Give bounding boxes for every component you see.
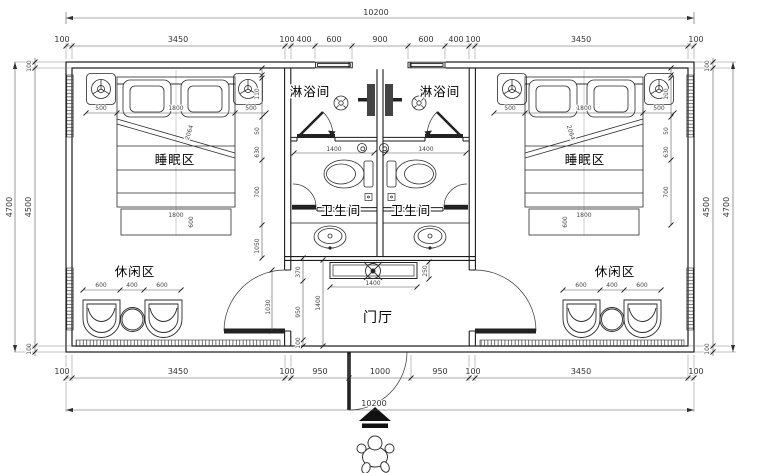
dim-label: 400 xyxy=(448,35,463,44)
dim-label: 630 xyxy=(663,146,670,158)
dim-label: 100 xyxy=(26,343,33,355)
armchair-icon xyxy=(145,300,182,338)
dim-label: 600 xyxy=(636,282,648,289)
dim-label: 600 xyxy=(156,282,168,289)
dim-label: 370 xyxy=(295,266,302,278)
dim-label: 950 xyxy=(432,367,447,376)
door-arc xyxy=(293,184,316,207)
dim-label: 400 xyxy=(606,282,618,289)
dim-label: 400 xyxy=(126,282,138,289)
door-arc xyxy=(224,270,285,331)
toilet-icon xyxy=(324,160,373,188)
dim-label: 100 xyxy=(465,367,480,376)
room-label-foyer: 门厅 xyxy=(363,310,393,326)
wall-openings xyxy=(315,61,446,69)
shower-head-icon xyxy=(334,96,348,110)
lounge-left xyxy=(83,300,182,338)
dim-label: 600 xyxy=(95,282,107,289)
dim-label: 1400 xyxy=(315,295,322,310)
door-leaf xyxy=(444,205,468,210)
shower-track xyxy=(425,134,463,138)
dim-label: 700 xyxy=(663,186,670,198)
dim-label: 1800 xyxy=(576,212,591,219)
dim-label: 600 xyxy=(326,35,341,44)
dim-label: 4700 xyxy=(5,197,14,217)
dim-label: 110 xyxy=(254,88,261,100)
dim-label: 3450 xyxy=(168,367,188,376)
dim-label: 3450 xyxy=(168,35,188,44)
armchair-icon xyxy=(83,300,120,338)
dim-label: 600 xyxy=(188,216,195,228)
dim-label: 50 xyxy=(663,127,670,135)
dim-label: 100 xyxy=(279,367,294,376)
room-label-shower-right: 淋浴间 xyxy=(420,84,461,99)
dim-label: 100 xyxy=(688,367,703,376)
dim-label: 100 xyxy=(465,35,480,44)
sink-icon xyxy=(314,226,346,249)
room-label-lounge-right: 休闲区 xyxy=(595,264,636,279)
shower-valve-icon xyxy=(358,84,402,116)
room-label-wc-right: 卫生间 xyxy=(391,203,432,218)
door-arc xyxy=(475,270,536,331)
toilet-icon xyxy=(387,160,436,188)
dim-label: 700 xyxy=(254,186,261,198)
floor-drain-icon xyxy=(365,194,395,201)
dim-label: 100 xyxy=(54,367,69,376)
ceiling-lamp-icon xyxy=(87,74,116,105)
dim-label: 600 xyxy=(575,282,587,289)
dim-label: 1400 xyxy=(326,146,341,153)
dim-label: 1050 xyxy=(254,238,261,253)
dim-label: 900 xyxy=(372,35,387,44)
dim-label: 250 xyxy=(422,265,429,277)
floor-plan-drawing: 睡眠区 睡眠区 淋浴间 淋浴间 卫生间 卫生间 休闲区 休闲区 门厅 10200… xyxy=(0,0,760,473)
dim-label: 630 xyxy=(254,146,261,158)
room-label-shower-left: 淋浴间 xyxy=(290,84,331,99)
dim-label: 600 xyxy=(418,35,433,44)
dim-label: 500 xyxy=(653,105,665,112)
dim-label: 3450 xyxy=(571,35,591,44)
door-leaf xyxy=(224,329,285,334)
room-label-lounge-left: 休闲区 xyxy=(115,264,156,279)
door-leaf xyxy=(292,205,316,210)
dim-label: 500 xyxy=(504,105,516,112)
doors xyxy=(224,112,536,410)
dim-label: 1800 xyxy=(576,105,591,112)
dim-label: 100 xyxy=(279,35,294,44)
dim-label: 2064 xyxy=(184,124,195,141)
dim-label: 10200 xyxy=(363,8,388,17)
dim-label: 950 xyxy=(295,306,302,318)
dim-label: 600 xyxy=(562,216,569,228)
armchair-icon xyxy=(624,300,661,338)
dim-label: 110 xyxy=(663,88,670,100)
dim-label: 1400 xyxy=(418,146,433,153)
room-label-sleep-left: 睡眠区 xyxy=(155,152,196,167)
dim-label: 500 xyxy=(245,105,257,112)
dim-label: 100 xyxy=(704,60,711,72)
bathroom-fixtures xyxy=(314,84,446,249)
foyer-area xyxy=(330,262,417,280)
dim-label: 10200 xyxy=(361,399,386,408)
room-label-wc-left: 卫生间 xyxy=(321,203,362,218)
dim-label: 100 xyxy=(704,343,711,355)
toilet-paper-icon xyxy=(358,144,389,153)
dim-label: 4500 xyxy=(24,197,33,217)
sink-icon xyxy=(414,226,446,249)
round-table-icon xyxy=(600,308,624,332)
shower-door-leaf xyxy=(299,112,461,136)
dim-label: 950 xyxy=(312,367,327,376)
dim-label: 1800 xyxy=(168,105,183,112)
dim-label: 2064 xyxy=(565,124,576,141)
dim-label: 1030 xyxy=(265,299,272,314)
person-figure-icon xyxy=(357,436,394,473)
door-leaf xyxy=(475,329,536,334)
lounge-right xyxy=(563,300,661,338)
dim-label: 3450 xyxy=(571,367,591,376)
room-label-sleep-right: 睡眠区 xyxy=(565,152,606,167)
dim-label: 400 xyxy=(296,35,311,44)
dim-label: 50 xyxy=(254,127,261,135)
door-arc xyxy=(444,184,467,207)
dim-label: 4700 xyxy=(722,197,731,217)
dim-label: 1400 xyxy=(365,280,380,287)
dim-label: 100 xyxy=(295,337,302,349)
dim-label: 1800 xyxy=(168,212,183,219)
ceiling-lamp-icon xyxy=(498,74,527,105)
dim-label: 4500 xyxy=(702,197,711,217)
dim-label: 100 xyxy=(54,35,69,44)
dim-label: 100 xyxy=(26,60,33,72)
dim-label: 1000 xyxy=(370,367,390,376)
armchair-icon xyxy=(563,300,600,338)
dim-label: 500 xyxy=(95,105,107,112)
round-table-icon xyxy=(121,308,145,332)
dim-label: 100 xyxy=(688,35,703,44)
shower-track xyxy=(297,134,335,138)
